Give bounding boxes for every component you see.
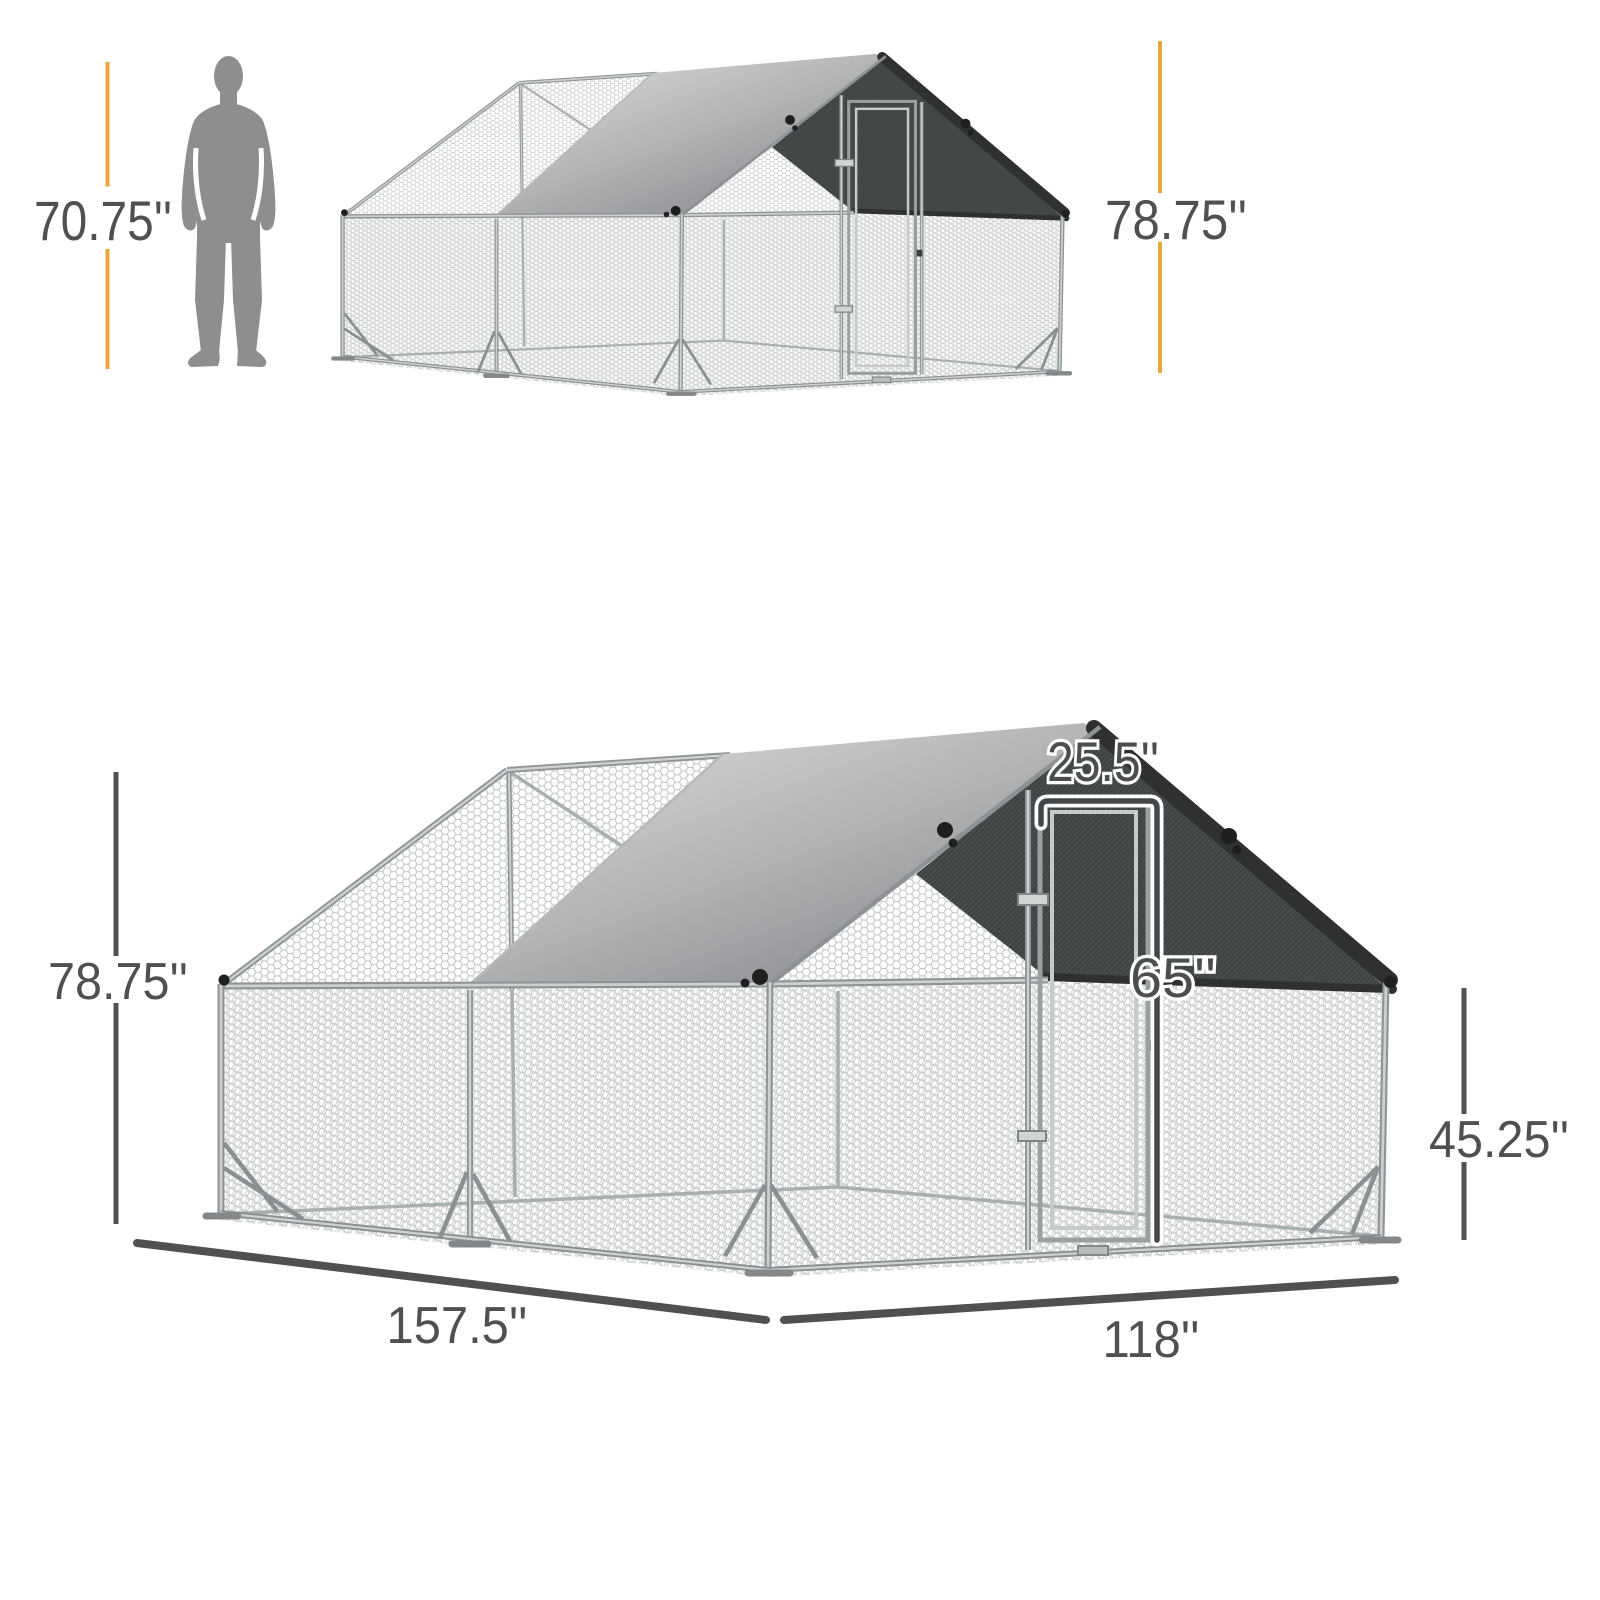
svg-text:70.75'': 70.75'' — [34, 189, 172, 252]
svg-text:45.25'': 45.25'' — [1429, 1111, 1569, 1169]
svg-text:118'': 118'' — [1103, 1311, 1200, 1369]
svg-text:157.5'': 157.5'' — [387, 1297, 528, 1355]
svg-text:78.75'': 78.75'' — [48, 953, 188, 1011]
svg-text:25.5'': 25.5'' — [1047, 730, 1159, 793]
svg-text:78.75'': 78.75'' — [1105, 188, 1247, 251]
svg-text:65'': 65'' — [1130, 946, 1216, 1009]
